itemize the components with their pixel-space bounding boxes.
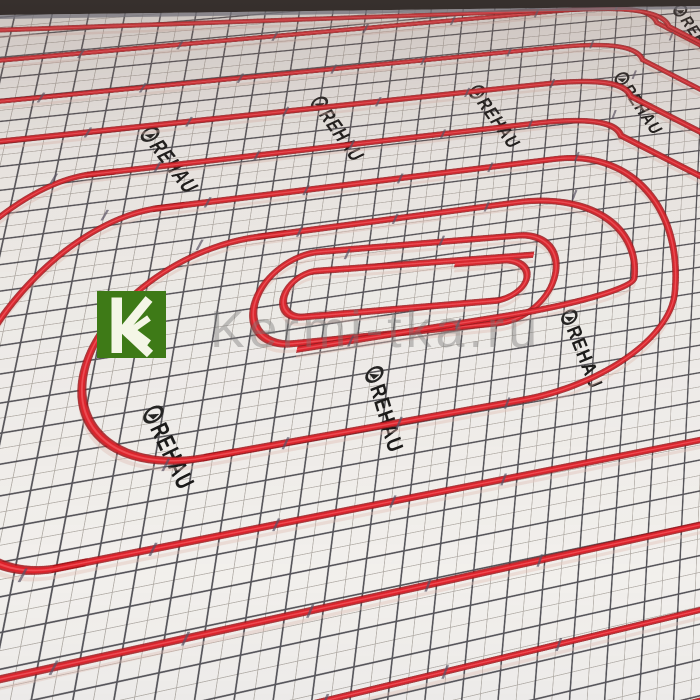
svg-text:Kermi-tka.ru: Kermi-tka.ru (210, 301, 541, 359)
